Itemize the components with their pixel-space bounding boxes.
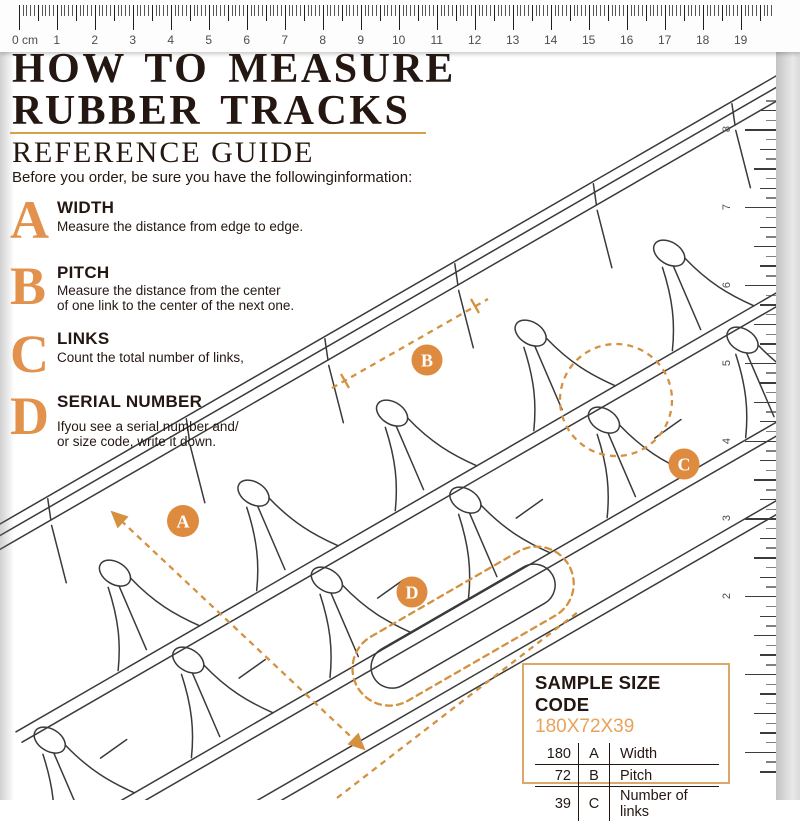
track-line xyxy=(25,499,89,583)
ruler-number: 1 xyxy=(53,33,60,47)
ruler-tick xyxy=(471,5,472,16)
ruler-tick xyxy=(368,5,369,16)
ruler-tick xyxy=(460,5,461,16)
ruler-tick xyxy=(148,5,149,16)
ruler-tick xyxy=(604,5,605,16)
ruler-tick xyxy=(399,5,400,30)
ruler-tick xyxy=(171,5,172,30)
ruler-tick xyxy=(524,5,525,16)
ruler-tick xyxy=(494,5,495,21)
track-line xyxy=(709,104,773,188)
ruler-tick xyxy=(133,5,134,30)
size-label: Number of links xyxy=(610,787,720,821)
ruler-tick xyxy=(235,5,236,16)
ruler-tick xyxy=(45,5,46,16)
track-line xyxy=(649,235,689,272)
ruler-tick xyxy=(581,5,582,16)
ruler-tick xyxy=(289,5,290,16)
ruler-tick xyxy=(767,5,768,16)
svg-text:A: A xyxy=(177,512,190,532)
ruler-tick xyxy=(452,5,453,16)
track-line xyxy=(164,419,228,503)
track-line xyxy=(722,322,762,359)
ruler-tick xyxy=(232,5,233,16)
track-line xyxy=(495,317,615,432)
ruler-tick xyxy=(498,5,499,16)
ruler-tick xyxy=(600,5,601,16)
ruler-tick xyxy=(330,5,331,16)
ruler-tick xyxy=(403,5,404,16)
ruler-number: 5 xyxy=(205,33,212,47)
track-line xyxy=(792,340,800,359)
ruler-tick xyxy=(205,5,206,16)
ruler-tick xyxy=(308,5,309,16)
ruler-tick xyxy=(745,5,746,16)
ruler-tick xyxy=(57,5,58,30)
size-value: 72 xyxy=(535,765,579,787)
ruler-tick xyxy=(247,5,248,30)
track-line xyxy=(29,722,69,759)
sample-size-table: 180 A Width 72 B Pitch 39 C Number of li… xyxy=(535,743,719,821)
table-row: 180 A Width xyxy=(535,743,719,765)
ruler-tick xyxy=(144,5,145,16)
ruler-tick xyxy=(406,5,407,16)
ruler-number: 19 xyxy=(734,33,747,47)
track-line xyxy=(168,642,208,679)
ruler-tick xyxy=(676,5,677,16)
ruler-tick xyxy=(118,5,119,16)
marker-badge-c: C xyxy=(669,449,700,480)
ruler-tick xyxy=(623,5,624,16)
ruler-tick xyxy=(140,5,141,16)
ruler-tick xyxy=(699,5,700,16)
ruler-tick xyxy=(266,5,267,21)
track-line xyxy=(571,184,635,268)
ruler-number: 14 xyxy=(544,33,557,47)
ruler-tick xyxy=(490,5,491,16)
ruler-tick xyxy=(95,5,96,30)
ruler-tick xyxy=(76,5,77,21)
top-ruler-zero-label: 0 cm xyxy=(12,33,38,47)
track-line xyxy=(302,339,366,423)
ruler-tick xyxy=(258,5,259,16)
ruler-tick xyxy=(429,5,430,16)
ruler-tick xyxy=(53,5,54,16)
ruler-number: 12 xyxy=(468,33,481,47)
ruler-tick xyxy=(414,5,415,16)
ruler-tick xyxy=(672,5,673,16)
ruler-number: 15 xyxy=(582,33,595,47)
track-line xyxy=(307,562,347,599)
ruler-tick xyxy=(125,5,126,16)
ruler-tick xyxy=(456,5,457,21)
ruler-tick xyxy=(631,5,632,16)
ruler-tick xyxy=(102,5,103,16)
ruler-tick xyxy=(254,5,255,16)
ruler-tick xyxy=(327,5,328,16)
ruler-tick xyxy=(292,5,293,16)
table-row: 39 C Number of links xyxy=(535,787,719,821)
ruler-tick xyxy=(30,5,31,16)
svg-text:D: D xyxy=(406,583,419,603)
ruler-tick xyxy=(114,5,115,21)
ruler-tick xyxy=(220,5,221,16)
ruler-tick xyxy=(729,5,730,16)
ruler-tick xyxy=(574,5,575,16)
ruler-tick xyxy=(68,5,69,16)
ruler-tick xyxy=(551,5,552,30)
ruler-tick xyxy=(467,5,468,16)
ruler-tick xyxy=(536,5,537,16)
ruler-tick xyxy=(349,5,350,16)
ruler-tick xyxy=(752,5,753,16)
ruler-number: 2 xyxy=(91,33,98,47)
ruler-tick xyxy=(718,5,719,16)
ruler-tick xyxy=(129,5,130,16)
ruler-tick xyxy=(619,5,620,16)
ruler-tick xyxy=(771,5,772,16)
ruler-tick xyxy=(372,5,373,16)
ruler-tick xyxy=(703,5,704,30)
ruler-tick xyxy=(243,5,244,16)
ruler-tick xyxy=(733,5,734,16)
ruler-tick xyxy=(357,5,358,16)
ruler-tick xyxy=(19,5,20,30)
ruler-tick xyxy=(612,5,613,16)
ruler-tick xyxy=(42,5,43,16)
ruler-tick xyxy=(570,5,571,21)
ruler-tick xyxy=(300,5,301,16)
ruler-tick xyxy=(26,5,27,16)
ruler-tick xyxy=(34,5,35,16)
ruler-tick xyxy=(486,5,487,16)
ruler-tick xyxy=(49,5,50,16)
ruler-tick xyxy=(707,5,708,16)
track-line xyxy=(95,555,135,592)
ruler-tick xyxy=(627,5,628,30)
ruler-tick xyxy=(741,5,742,30)
ruler-tick xyxy=(38,5,39,21)
ruler-tick xyxy=(175,5,176,16)
ruler-tick xyxy=(714,5,715,16)
ruler-tick xyxy=(642,5,643,16)
ruler-tick xyxy=(395,5,396,16)
ruler-number: 7 xyxy=(281,33,288,47)
ruler-tick xyxy=(281,5,282,16)
ruler-tick xyxy=(615,5,616,16)
ruler-tick xyxy=(669,5,670,16)
ruler-tick xyxy=(159,5,160,16)
ruler-tick xyxy=(304,5,305,21)
ruler-tick xyxy=(296,5,297,16)
ruler-tick xyxy=(338,5,339,16)
ruler-tick xyxy=(695,5,696,16)
ruler-tick xyxy=(72,5,73,16)
ruler-tick xyxy=(277,5,278,16)
ruler-tick xyxy=(99,5,100,16)
ruler-number: 6 xyxy=(243,33,250,47)
ruler-tick xyxy=(365,5,366,16)
track-line xyxy=(584,402,624,439)
ruler-number: 11 xyxy=(430,33,442,47)
ruler-tick xyxy=(764,5,765,16)
ruler-tick xyxy=(646,5,647,21)
ruler-number: 10 xyxy=(392,33,405,47)
ruler-tick xyxy=(482,5,483,16)
ruler-number: 8 xyxy=(319,33,326,47)
ruler-tick xyxy=(756,5,757,16)
svg-text:B: B xyxy=(421,351,433,371)
track-line xyxy=(372,395,412,432)
track-line xyxy=(0,19,800,569)
ruler-tick xyxy=(650,5,651,16)
ruler-number: 18 xyxy=(696,33,709,47)
ruler-tick xyxy=(517,5,518,16)
ruler-tick xyxy=(346,5,347,16)
ruler-tick xyxy=(433,5,434,16)
track-line xyxy=(0,28,800,578)
marker-badge-a: A xyxy=(167,505,199,537)
ruler-tick xyxy=(182,5,183,16)
ruler-tick xyxy=(479,5,480,16)
ruler-tick xyxy=(197,5,198,16)
ruler-tick xyxy=(555,5,556,16)
track-line xyxy=(233,475,273,512)
ruler-tick xyxy=(213,5,214,16)
ruler-tick xyxy=(657,5,658,16)
ruler-tick xyxy=(722,5,723,21)
ruler-tick xyxy=(285,5,286,30)
size-label: Pitch xyxy=(610,765,720,787)
ruler-tick xyxy=(422,5,423,16)
ruler-tick xyxy=(653,5,654,16)
ruler-tick xyxy=(634,5,635,16)
ruler-tick xyxy=(152,5,153,21)
ruler-tick xyxy=(593,5,594,16)
ruler-tick xyxy=(110,5,111,16)
ruler-tick xyxy=(558,5,559,16)
sample-size-code-box: SAMPLE SIZE CODE 180X72X39 180 A Width 7… xyxy=(522,663,730,784)
ruler-tick xyxy=(106,5,107,16)
ruler-tick xyxy=(190,5,191,21)
ruler-tick xyxy=(684,5,685,21)
ruler-tick xyxy=(23,5,24,16)
track-line xyxy=(707,324,800,439)
ruler-tick xyxy=(251,5,252,16)
ruler-tick xyxy=(167,5,168,16)
size-value: 180 xyxy=(535,743,579,765)
ruler-tick xyxy=(691,5,692,16)
track-line xyxy=(788,155,800,192)
ruler-number: 3 xyxy=(129,33,136,47)
ruler-tick xyxy=(448,5,449,16)
ruler-tick xyxy=(137,5,138,16)
track-line xyxy=(99,740,128,759)
track-line xyxy=(772,157,800,272)
ruler-tick xyxy=(319,5,320,16)
ruler-tick xyxy=(437,5,438,30)
ruler-tick xyxy=(441,5,442,16)
track-line xyxy=(153,644,273,759)
ruler-tick xyxy=(425,5,426,16)
ruler-tick xyxy=(270,5,271,16)
ruler-tick xyxy=(665,5,666,30)
size-letter: C xyxy=(579,787,610,821)
size-value: 39 xyxy=(535,787,579,821)
ruler-tick xyxy=(688,5,689,16)
ruler-tick xyxy=(83,5,84,16)
ruler-tick xyxy=(566,5,567,16)
ruler-tick xyxy=(737,5,738,16)
track-line xyxy=(80,557,200,672)
ruler-tick xyxy=(194,5,195,16)
ruler-tick xyxy=(726,5,727,16)
ruler-tick xyxy=(410,5,411,16)
ruler-tick xyxy=(391,5,392,16)
ruler-tick xyxy=(228,5,229,21)
ruler-tick xyxy=(239,5,240,16)
ruler-tick xyxy=(163,5,164,16)
track-line xyxy=(445,482,485,519)
ruler-tick xyxy=(463,5,464,16)
ruler-tick xyxy=(748,5,749,16)
ruler-tick xyxy=(475,5,476,30)
track-line xyxy=(218,477,338,592)
ruler-tick xyxy=(201,5,202,16)
ruler-number: 16 xyxy=(620,33,633,47)
ruler-tick xyxy=(384,5,385,16)
track-line xyxy=(430,484,550,599)
track-line xyxy=(432,264,496,348)
ruler-tick xyxy=(178,5,179,16)
ruler-tick xyxy=(262,5,263,16)
marker-badge-d: D xyxy=(397,577,428,608)
track-line xyxy=(291,564,411,679)
ruler-tick xyxy=(361,5,362,30)
ruler-tick xyxy=(64,5,65,16)
table-row: 72 B Pitch xyxy=(535,765,719,787)
ruler-tick xyxy=(638,5,639,16)
ruler-tick xyxy=(608,5,609,21)
ruler-tick xyxy=(543,5,544,16)
ruler-tick xyxy=(380,5,381,21)
ruler-tick xyxy=(342,5,343,21)
ruler-tick xyxy=(528,5,529,16)
ruler-tick xyxy=(121,5,122,16)
track-line xyxy=(357,397,477,512)
ruler-tick xyxy=(353,5,354,16)
size-letter: B xyxy=(579,765,610,787)
ruler-tick xyxy=(209,5,210,30)
ruler-tick xyxy=(186,5,187,16)
size-letter: A xyxy=(579,743,610,765)
ruler-tick xyxy=(532,5,533,21)
track-line xyxy=(634,237,754,352)
ruler-tick xyxy=(418,5,419,21)
ruler-tick xyxy=(760,5,761,21)
ruler-tick xyxy=(509,5,510,16)
ruler-tick xyxy=(577,5,578,16)
ruler-tick xyxy=(505,5,506,16)
ruler-tick xyxy=(444,5,445,16)
svg-text:C: C xyxy=(678,455,691,475)
ruler-tick xyxy=(562,5,563,16)
ruler-tick xyxy=(273,5,274,16)
track-line xyxy=(515,500,544,519)
track-line xyxy=(510,315,550,352)
sample-box-title: SAMPLE SIZE CODE xyxy=(535,672,717,716)
ruler-tick xyxy=(315,5,316,16)
ruler-tick xyxy=(520,5,521,16)
ruler-tick xyxy=(596,5,597,16)
top-ruler-cm: 0 cm 12345678910111213141516171819 xyxy=(0,0,800,52)
sample-size-code: 180X72X39 xyxy=(535,716,717,738)
ruler-number: 17 xyxy=(658,33,671,47)
ruler-tick xyxy=(387,5,388,16)
ruler-tick xyxy=(323,5,324,30)
track-line xyxy=(0,38,800,588)
ruler-tick xyxy=(87,5,88,16)
size-label: Width xyxy=(610,743,720,765)
ruler-tick xyxy=(334,5,335,16)
ruler-tick xyxy=(585,5,586,16)
ruler-number: 4 xyxy=(167,33,174,47)
ruler-tick xyxy=(539,5,540,16)
ruler-tick xyxy=(501,5,502,16)
ruler-tick xyxy=(216,5,217,16)
marker-badge-b: B xyxy=(412,345,443,376)
ruler-number: 9 xyxy=(357,33,364,47)
ruler-tick xyxy=(513,5,514,30)
ruler-tick xyxy=(710,5,711,16)
ruler-tick xyxy=(224,5,225,16)
ruler-tick xyxy=(376,5,377,16)
ruler-tick xyxy=(156,5,157,16)
ruler-tick xyxy=(547,5,548,16)
ruler-tick xyxy=(80,5,81,16)
ruler-tick xyxy=(61,5,62,16)
width-measure-arrow xyxy=(113,513,363,748)
ruler-tick xyxy=(680,5,681,16)
ruler-number: 13 xyxy=(506,33,519,47)
ruler-tick xyxy=(91,5,92,16)
ruler-tick xyxy=(589,5,590,30)
ruler-tick xyxy=(661,5,662,16)
ruler-tick xyxy=(311,5,312,16)
track-line xyxy=(238,660,267,679)
